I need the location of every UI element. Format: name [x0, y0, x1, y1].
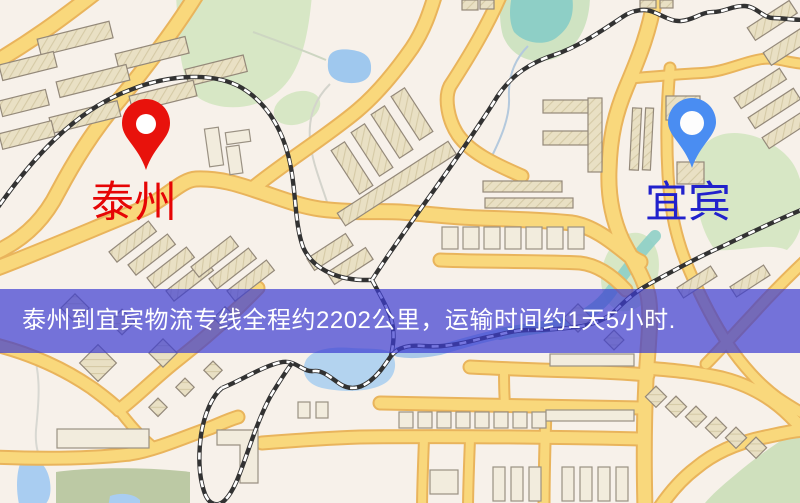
- route-info-text: 泰州到宜宾物流专线全程约2202公里，运输时间约1天5小时.: [0, 289, 800, 353]
- lake: [328, 49, 371, 83]
- map-image: 泰州 宜宾 泰州到宜宾物流专线全程约2202公里，运输时间约1天5小时.: [0, 0, 800, 503]
- origin-label: 泰州: [91, 180, 177, 227]
- destination-label: 宜宾: [645, 179, 731, 227]
- route-info-banner: 泰州到宜宾物流专线全程约2202公里，运输时间约1天5小时.: [0, 289, 800, 353]
- map-canvas: 泰州 宜宾: [0, 0, 800, 503]
